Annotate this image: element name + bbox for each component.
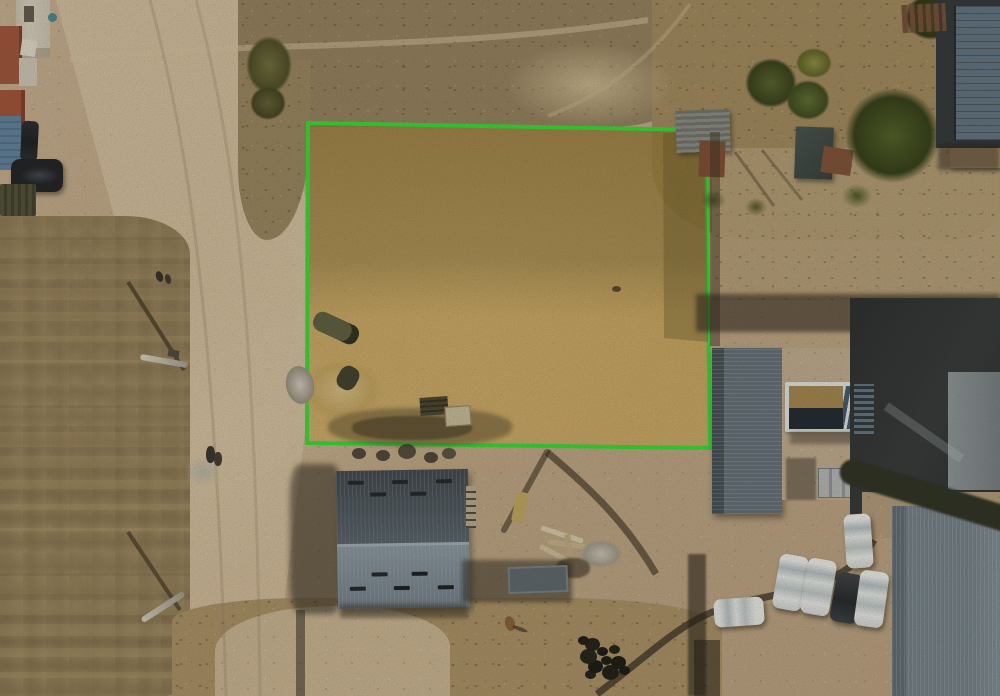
aerial-photo [0, 0, 1000, 696]
vignette [0, 0, 1000, 696]
